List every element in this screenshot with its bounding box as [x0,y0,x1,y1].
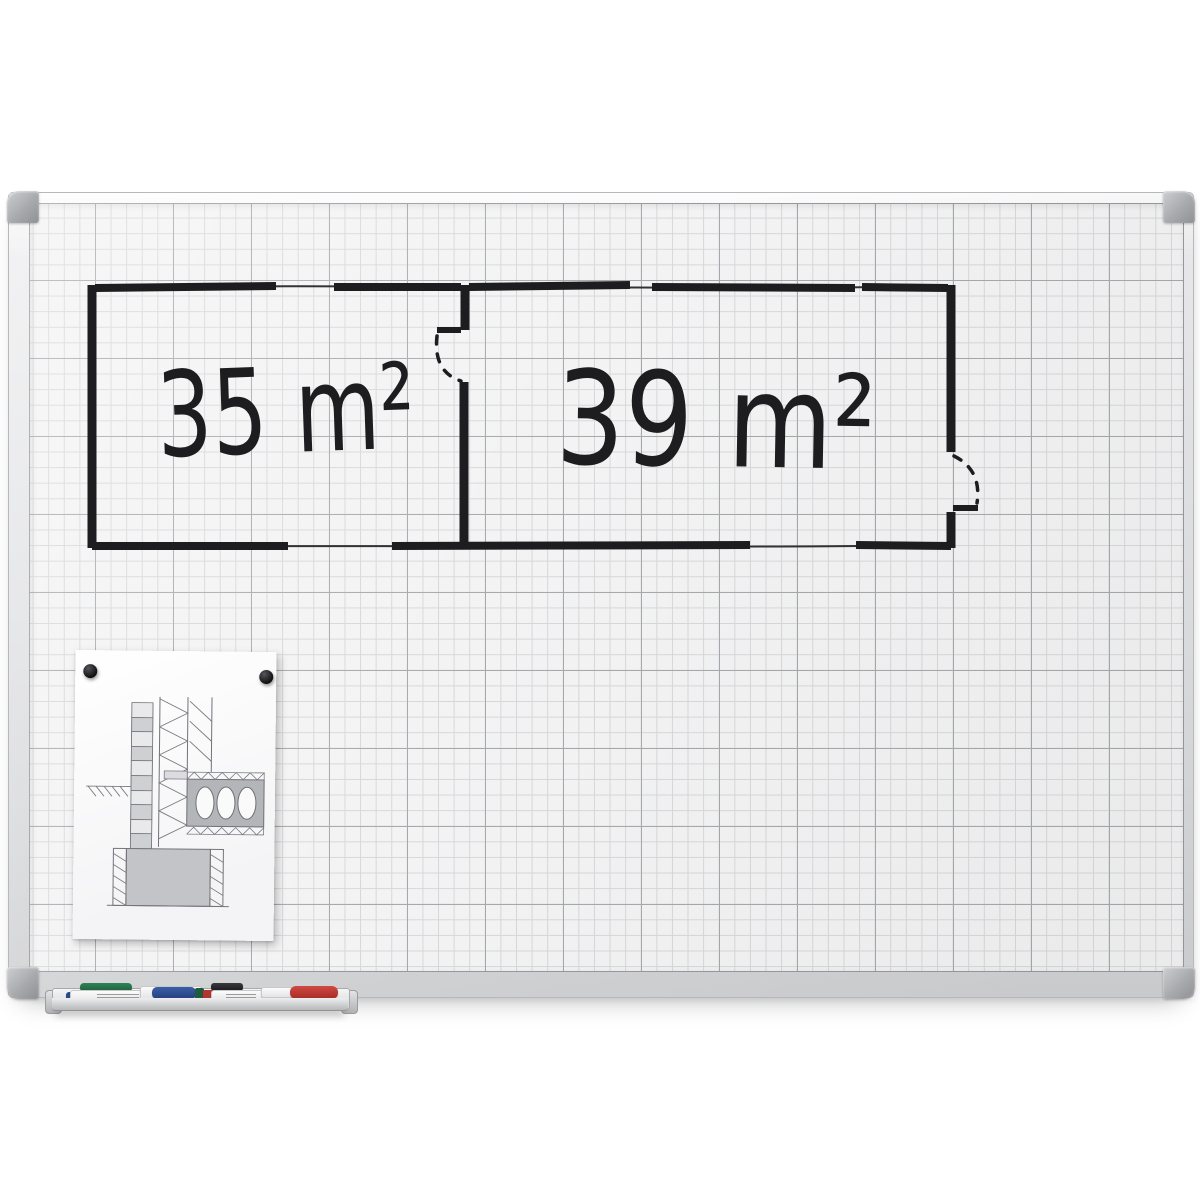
corner-cap-bottom-right [1163,967,1195,999]
sill-step [164,771,187,779]
corner-cap-bottom-left [7,967,39,999]
round-magnet-left [83,664,97,678]
construction-detail-drawing [72,650,276,941]
tray-front-lip [52,998,348,1011]
foundation-block [107,848,230,906]
hollow-core-slab [187,772,265,835]
corner-cap-top-left [7,191,39,223]
whiteboard-product-photo: 35 m² 39 m² [0,0,1200,1200]
grade-line-hatch [86,786,131,796]
pinned-paper [72,650,276,941]
corner-cap-top-right [1163,191,1195,223]
pen-tray [46,982,356,1016]
round-magnet-right [259,670,273,684]
masonry-wall [130,703,153,849]
